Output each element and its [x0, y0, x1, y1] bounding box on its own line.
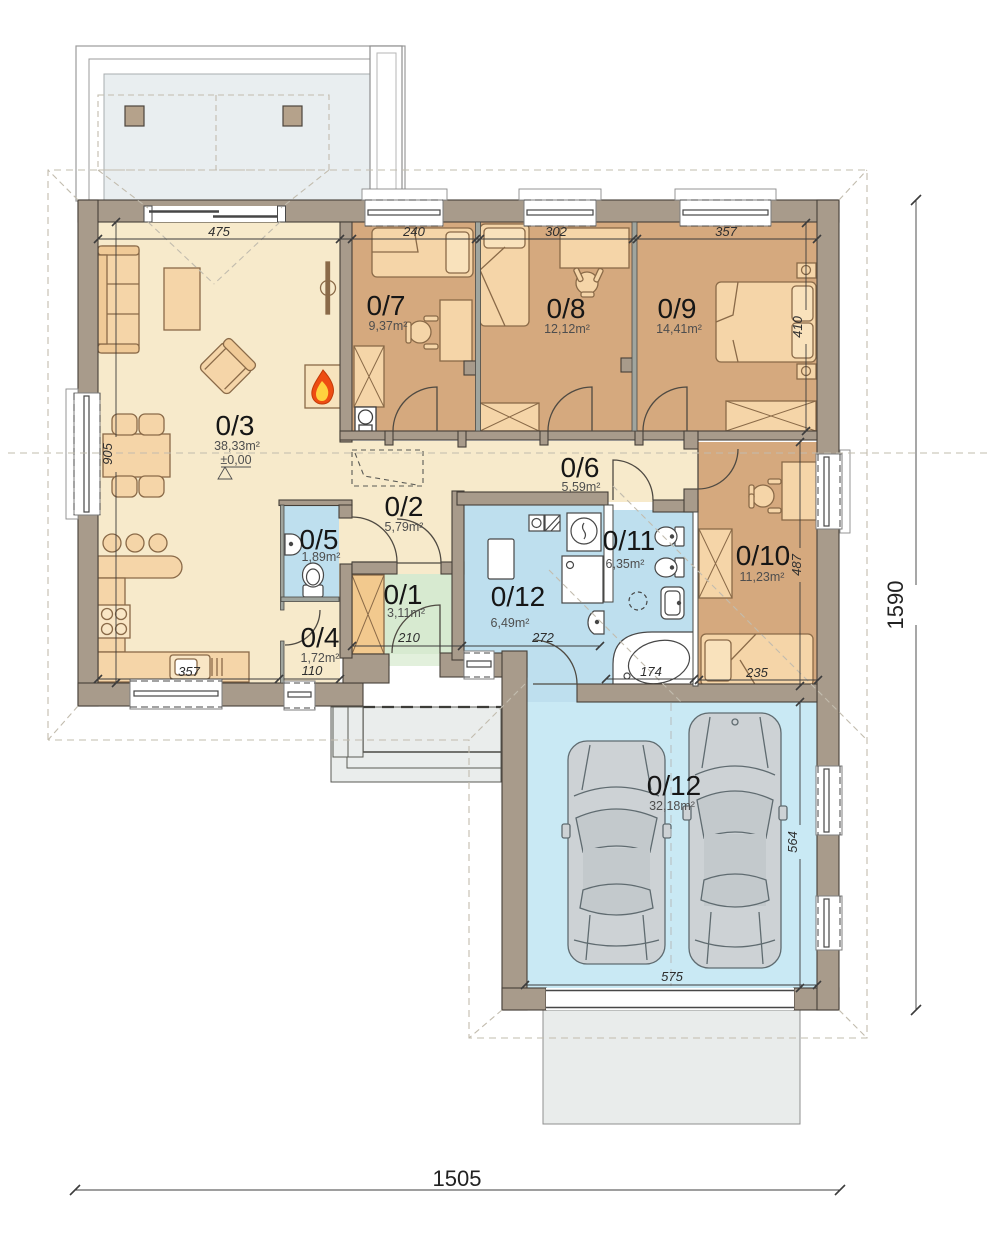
svg-text:0/2: 0/2 [385, 491, 424, 522]
svg-text:564: 564 [785, 831, 800, 853]
svg-text:210: 210 [397, 630, 420, 645]
svg-text:1505: 1505 [433, 1166, 482, 1191]
svg-text:0/8: 0/8 [547, 293, 586, 324]
svg-text:302: 302 [545, 224, 567, 239]
svg-text:905: 905 [100, 442, 115, 464]
svg-text:0/10: 0/10 [736, 540, 791, 571]
svg-text:357: 357 [715, 224, 737, 239]
svg-text:1590: 1590 [883, 581, 908, 630]
svg-text:0/11: 0/11 [603, 525, 655, 556]
svg-text:410: 410 [790, 315, 805, 337]
svg-text:0/9: 0/9 [658, 293, 697, 324]
svg-text:9,37m²: 9,37m² [369, 319, 408, 333]
svg-text:11,23m²: 11,23m² [740, 570, 785, 584]
svg-text:235: 235 [745, 665, 768, 680]
svg-text:357: 357 [178, 664, 200, 679]
svg-text:5,79m²: 5,79m² [385, 520, 424, 534]
svg-text:0/6: 0/6 [561, 452, 600, 483]
svg-text:272: 272 [531, 630, 554, 645]
svg-text:0/7: 0/7 [367, 290, 406, 321]
svg-text:6,49m²: 6,49m² [491, 616, 530, 630]
svg-text:174: 174 [640, 664, 662, 679]
svg-text:14,41m²: 14,41m² [656, 322, 702, 336]
svg-text:110: 110 [302, 663, 323, 678]
svg-text:5,59m²: 5,59m² [562, 480, 601, 494]
svg-text:32,18m²: 32,18m² [649, 799, 695, 813]
svg-text:0/4: 0/4 [301, 622, 340, 653]
svg-text:6,35m²: 6,35m² [606, 557, 645, 571]
svg-text:38,33m²: 38,33m² [214, 439, 260, 453]
svg-text:12,12m²: 12,12m² [544, 322, 590, 336]
svg-text:±0,00: ±0,00 [220, 453, 251, 467]
svg-text:0/12: 0/12 [491, 581, 546, 612]
svg-text:240: 240 [402, 224, 425, 239]
svg-text:3,11m²: 3,11m² [387, 606, 425, 620]
svg-text:1,89m²: 1,89m² [302, 550, 341, 564]
svg-text:0/3: 0/3 [216, 410, 255, 441]
svg-text:475: 475 [208, 224, 230, 239]
svg-text:575: 575 [661, 969, 683, 984]
svg-text:487: 487 [789, 553, 804, 575]
svg-text:0/12: 0/12 [647, 770, 702, 801]
